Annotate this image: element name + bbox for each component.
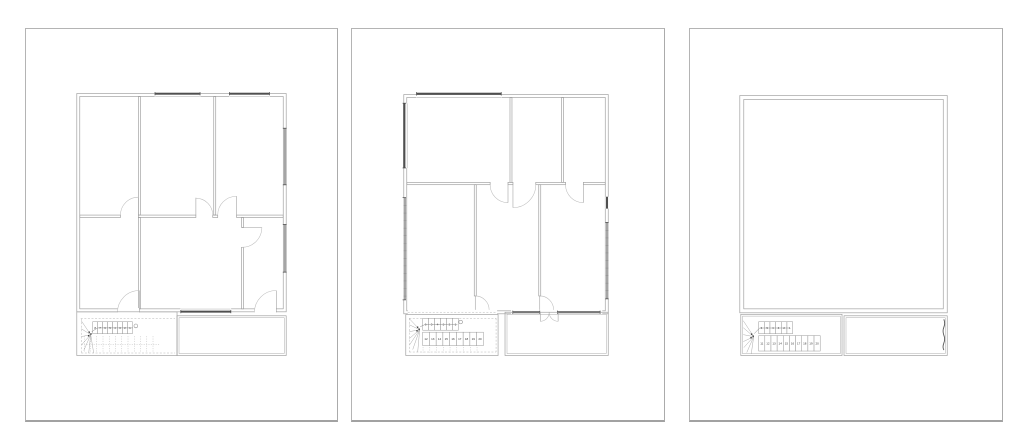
floor-plan-middle-drawing: 654321 121314151617181920 (352, 29, 664, 420)
window (155, 93, 200, 95)
stair-tread-number: 14 (779, 341, 783, 345)
door-swing (490, 185, 508, 203)
stair-hall-group: 87654321 (77, 312, 177, 356)
stair-tread-number: 16 (451, 337, 455, 341)
stair-flight-1-treads: 654321 (759, 322, 793, 334)
window (230, 93, 270, 95)
stair-tread-number: 20 (815, 341, 819, 345)
stair-flight-2-treads: 121314151617181920 (423, 332, 484, 345)
stair-tread-number: 13 (431, 337, 435, 341)
interior-wall (213, 215, 218, 217)
floor-plan-left-drawing: 87654321 (26, 29, 337, 420)
porch-outline (505, 312, 608, 355)
stair-tread-number: 18 (803, 341, 807, 345)
drawing-canvas: 87654321 (0, 0, 1024, 448)
windows-group (155, 92, 287, 313)
floor-plan-right-drawing: 654321 11121314151617181920 (690, 29, 1002, 420)
door-swing (196, 198, 213, 215)
stair-winder-fan (409, 319, 419, 352)
stair-tread-number: 12 (424, 337, 428, 341)
interior-wall (562, 97, 564, 182)
interior-wall (138, 96, 140, 215)
porch-inner-line (507, 314, 606, 353)
interior-wall (474, 185, 476, 296)
window (403, 103, 405, 168)
door-swing (475, 296, 489, 310)
interior-wall (539, 185, 541, 296)
stair-hall-group: 654321 11121314151617181920 (741, 314, 842, 355)
interior-wall (242, 247, 244, 309)
wall-openings-group (117, 92, 286, 313)
stair-reference-circle (459, 320, 463, 324)
stair-winder-fan (743, 321, 753, 354)
walls-group (740, 95, 947, 312)
stair-tread-number: 15 (445, 337, 449, 341)
stair-tread-number: 13 (772, 341, 776, 345)
wall-openings-group (402, 92, 609, 314)
stair-reference-circle (134, 324, 138, 328)
interior-wall (510, 97, 512, 182)
stair-tread-number: 19 (809, 341, 813, 345)
stair-flight-dashed (423, 347, 477, 352)
interior-wall (536, 182, 566, 184)
walls-group (404, 94, 608, 313)
sheet-floor-plan-left: 87654321 (25, 28, 338, 422)
window (181, 311, 231, 313)
porch-group (844, 316, 947, 356)
window (283, 225, 286, 273)
porch-group (505, 312, 608, 355)
porch-outline (844, 316, 947, 356)
porch-group (177, 316, 286, 356)
stair-tread-number: 18 (465, 337, 469, 341)
window (283, 128, 286, 185)
porch-inner-line (179, 318, 284, 354)
interior-wall (508, 182, 513, 184)
exterior-wall-inner-line (407, 97, 605, 310)
stair-tread-number: 17 (458, 337, 462, 341)
exterior-wall-inner-line (744, 99, 943, 308)
window (606, 197, 608, 209)
stair-tread-number: 17 (797, 341, 801, 345)
exterior-wall-outline (77, 94, 286, 312)
door-swing (218, 196, 237, 215)
sheet-floor-plan-right: 654321 11121314151617181920 (689, 28, 1003, 422)
exterior-wall-inner-line (80, 96, 283, 308)
door-swing (513, 185, 536, 208)
porch-outline (177, 316, 286, 356)
window (417, 93, 501, 95)
stair-tread-number: 11 (760, 341, 763, 345)
interior-wall (242, 217, 244, 227)
stair-tread-number: 14 (438, 337, 442, 341)
exterior-wall-outline (404, 94, 608, 313)
interior-wall (80, 215, 121, 217)
interior-wall (138, 215, 196, 217)
door-swing (242, 227, 262, 247)
interior-wall (237, 215, 284, 217)
interior-wall (214, 96, 216, 215)
walls-group (77, 94, 286, 312)
interior-wall (407, 182, 490, 184)
interior-wall (583, 182, 605, 184)
doors-group (475, 185, 583, 322)
stair-tread-number: 15 (785, 341, 789, 345)
door-swing (566, 185, 584, 203)
stair-tread-number: 16 (791, 341, 795, 345)
porch-inner-line (846, 318, 945, 354)
windows-group (403, 92, 609, 314)
downspout-mark (943, 319, 945, 350)
sheet-floor-plan-middle: 654321 121314151617181920 (351, 28, 665, 422)
stair-tread-number: 19 (472, 337, 476, 341)
stair-hall-group: 654321 121314151617181920 (406, 312, 498, 355)
doors-group (117, 196, 276, 312)
door-swing (540, 296, 554, 310)
stair-tread-number: 20 (478, 337, 482, 341)
stair-flight-2-treads: 11121314151617181920 (759, 336, 821, 351)
exterior-wall-outline (740, 95, 947, 312)
stair-winder-fan (81, 321, 93, 353)
stair-tread-number: 12 (766, 341, 770, 345)
door-swing (120, 197, 138, 215)
